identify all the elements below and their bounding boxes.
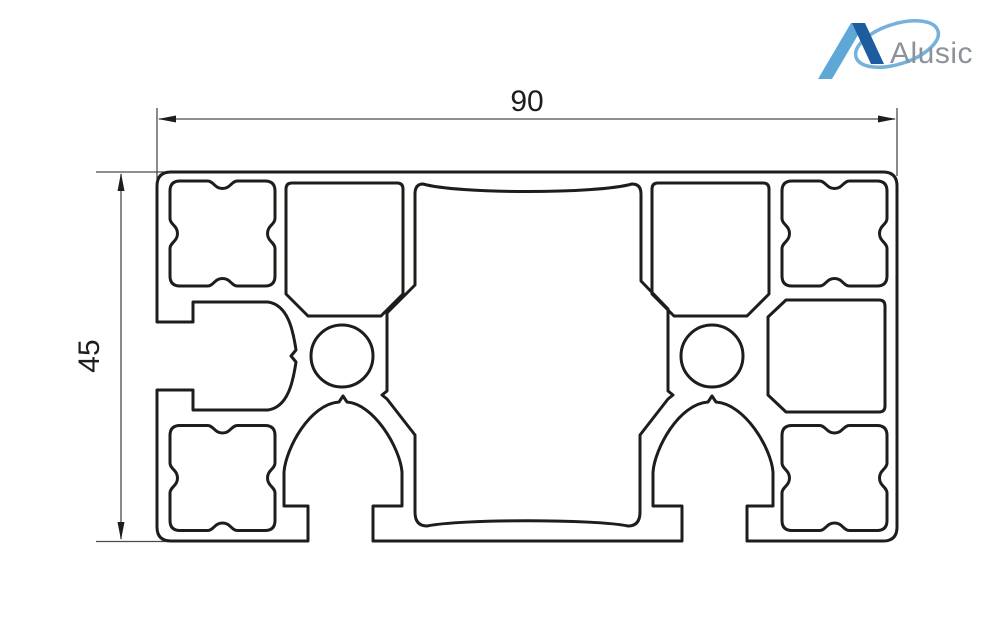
dimension-label-height: 45 (73, 339, 106, 372)
dimension-width: 90 (157, 85, 897, 179)
logo-brand-text: Alusic (890, 37, 973, 70)
arrowhead-top-icon (118, 173, 125, 191)
screw-hole-left (311, 325, 373, 387)
cavity-central (382, 184, 673, 526)
cavity-bottom-left-square (170, 426, 275, 531)
cavity-right-rectangular (768, 300, 885, 412)
technical-drawing: 90 45 Alusic (0, 0, 986, 629)
arrowhead-right-icon (878, 116, 896, 123)
dimension-label-width: 90 (510, 85, 543, 118)
arrowhead-bottom-icon (118, 522, 125, 540)
cavity-top-right-square (782, 181, 887, 286)
dimension-height: 45 (73, 172, 181, 542)
cavity-bottom-right-square (782, 426, 887, 531)
arrowhead-left-icon (158, 116, 176, 123)
cavity-top-left-square (170, 181, 275, 286)
cavity-upper-right-chamfered (652, 183, 769, 316)
screw-hole-right (681, 325, 743, 387)
profile-cross-section (157, 172, 897, 541)
brand-logo: Alusic (818, 12, 973, 79)
technical-drawing-page: 90 45 Alusic (0, 0, 986, 629)
cavity-upper-left-chamfered (286, 183, 403, 316)
